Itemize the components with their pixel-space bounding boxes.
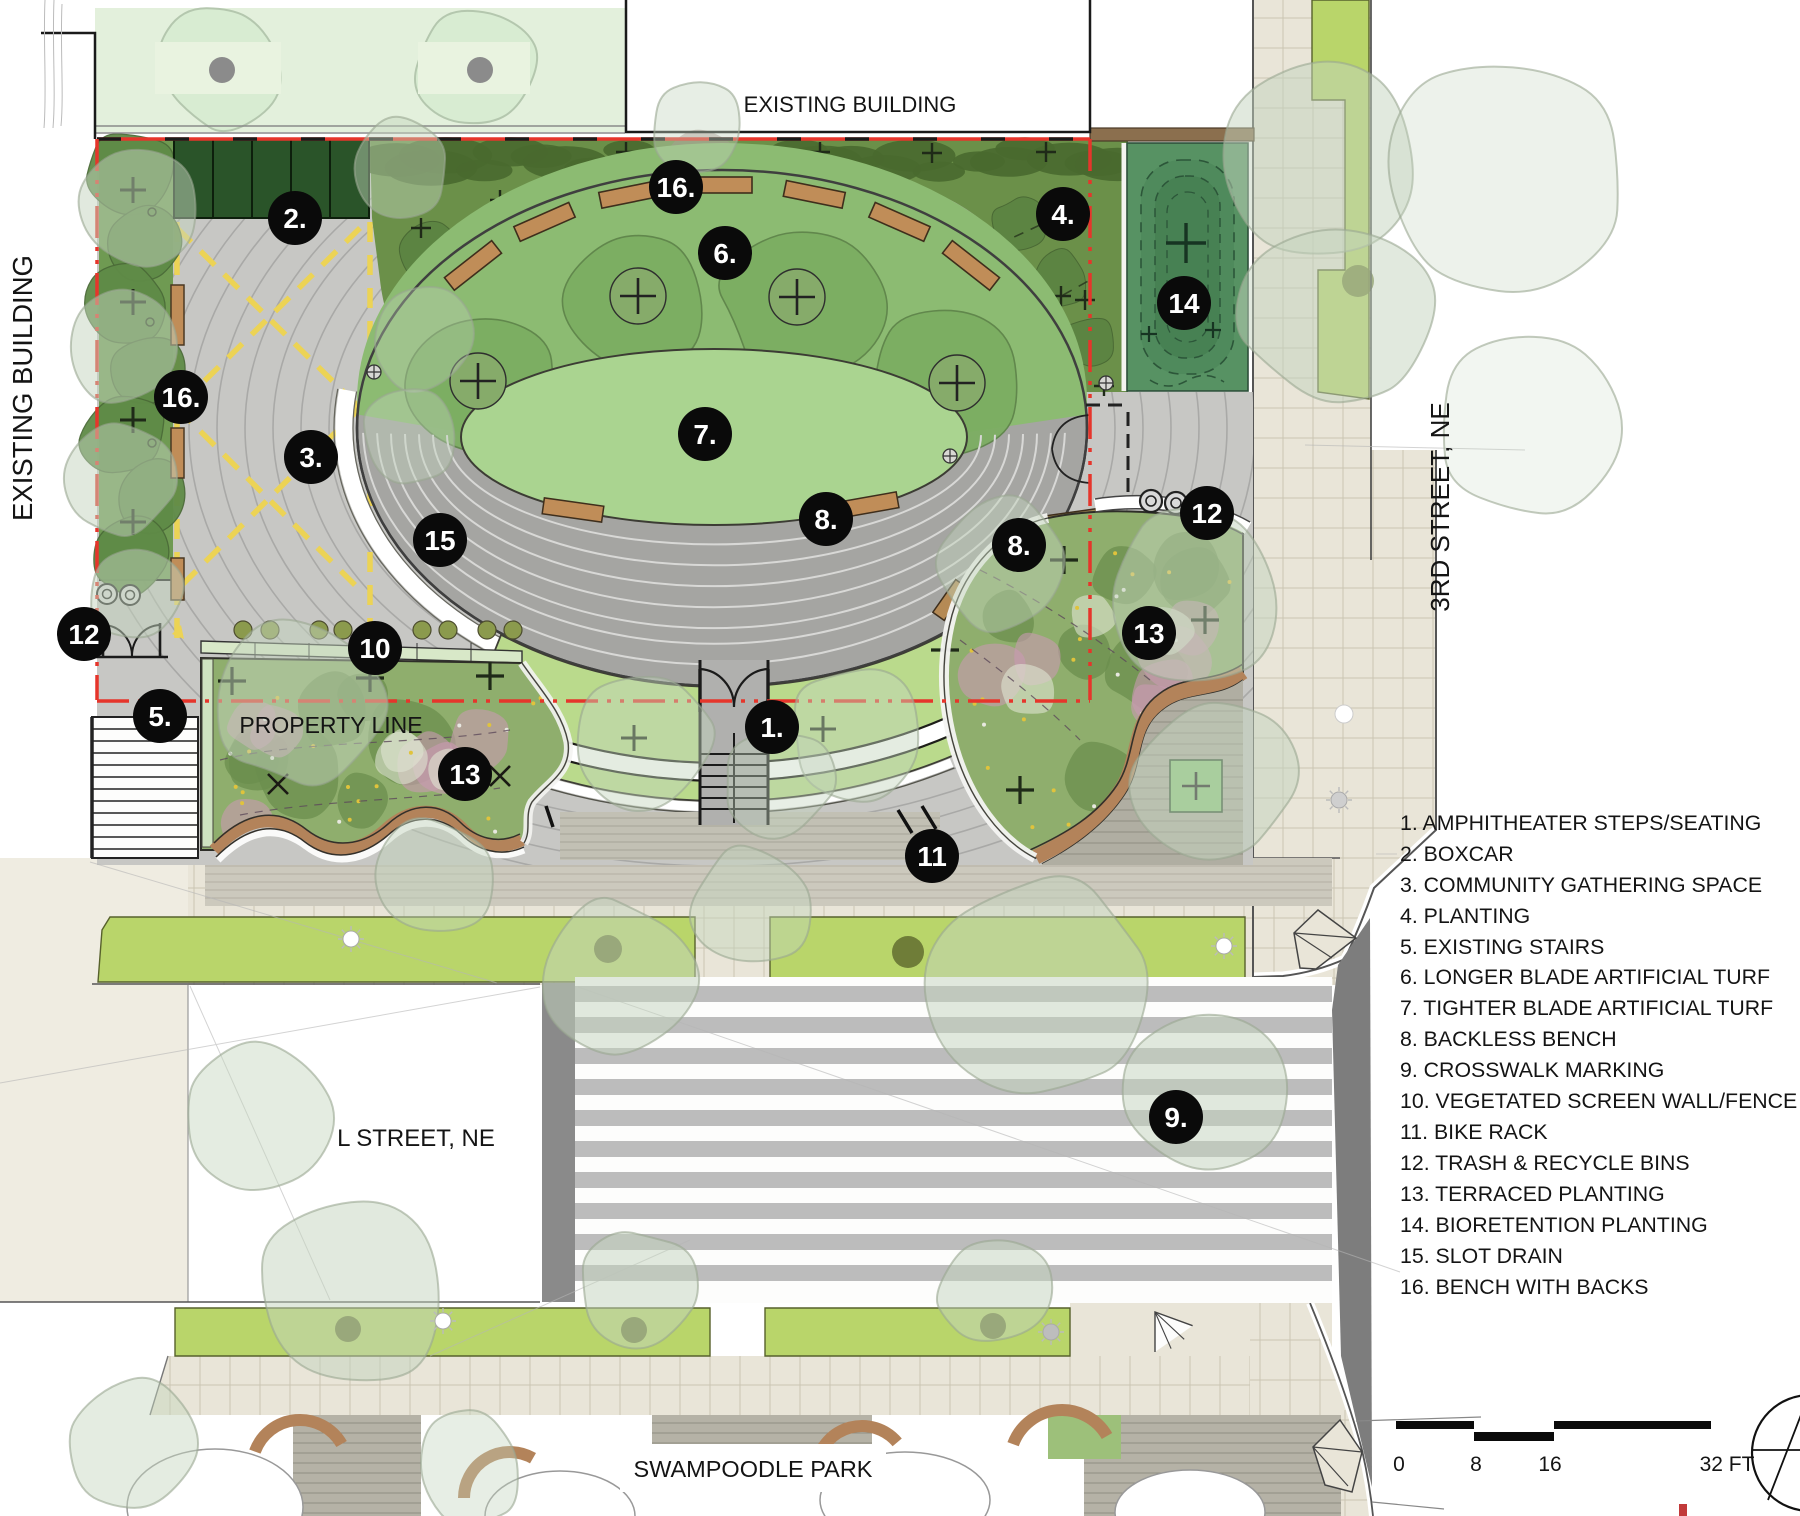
svg-text:10. VEGETATED SCREEN WALL/FENC: 10. VEGETATED SCREEN WALL/FENCE [1400,1089,1797,1113]
svg-text:14. BIORETENTION PLANTING: 14. BIORETENTION PLANTING [1400,1213,1708,1237]
svg-text:11: 11 [917,841,947,872]
svg-text:10: 10 [359,633,390,664]
svg-text:12: 12 [1191,498,1222,529]
svg-text:2.: 2. [283,203,306,234]
svg-text:9. CROSSWALK MARKING: 9. CROSSWALK MARKING [1400,1058,1664,1082]
svg-text:8.: 8. [814,504,837,535]
svg-text:3.: 3. [299,442,322,473]
svg-text:8.: 8. [1007,530,1030,561]
svg-text:16: 16 [1538,1453,1561,1476]
svg-text:11. BIKE RACK: 11. BIKE RACK [1400,1120,1548,1144]
svg-text:16.: 16. [657,172,696,203]
svg-text:0: 0 [1393,1453,1405,1476]
svg-text:12. TRASH & RECYCLE BINS: 12. TRASH & RECYCLE BINS [1400,1151,1690,1175]
svg-text:3RD STREET, NE: 3RD STREET, NE [1425,402,1455,612]
svg-text:L STREET, NE: L STREET, NE [337,1125,495,1152]
svg-text:7.: 7. [693,419,716,450]
svg-text:EXISTING BUILDING: EXISTING BUILDING [744,92,957,117]
svg-text:4. PLANTING: 4. PLANTING [1400,904,1530,928]
svg-text:14: 14 [1168,288,1200,319]
svg-text:SWAMPOODLE PARK: SWAMPOODLE PARK [634,1456,873,1482]
svg-text:13: 13 [1133,618,1164,649]
svg-text:9.: 9. [1164,1102,1187,1133]
svg-text:PROPERTY LINE: PROPERTY LINE [239,712,422,738]
svg-text:6. LONGER BLADE ARTIFICIAL TUR: 6. LONGER BLADE ARTIFICIAL TURF [1400,965,1770,989]
svg-text:5. EXISTING STAIRS: 5. EXISTING STAIRS [1400,935,1604,959]
svg-text:6.: 6. [713,238,736,269]
svg-text:1.: 1. [760,712,783,743]
svg-text:2. BOXCAR: 2. BOXCAR [1400,842,1514,866]
svg-text:4.: 4. [1051,199,1074,230]
svg-text:5.: 5. [148,701,171,732]
svg-text:15: 15 [424,525,455,556]
svg-text:7. TIGHTER BLADE ARTIFICIAL TU: 7. TIGHTER BLADE ARTIFICIAL TURF [1400,996,1773,1020]
svg-text:16. BENCH WITH BACKS: 16. BENCH WITH BACKS [1400,1275,1649,1299]
svg-text:13: 13 [449,759,480,790]
svg-text:3. COMMUNITY GATHERING SPACE: 3. COMMUNITY GATHERING SPACE [1400,873,1762,897]
svg-text:1. AMPHITHEATER STEPS/SEATING: 1. AMPHITHEATER STEPS/SEATING [1400,811,1761,835]
svg-text:13. TERRACED PLANTING: 13. TERRACED PLANTING [1400,1182,1665,1206]
svg-text:8: 8 [1470,1453,1482,1476]
svg-text:15. SLOT DRAIN: 15. SLOT DRAIN [1400,1244,1563,1268]
svg-text:EXISTING BUILDING: EXISTING BUILDING [7,255,38,521]
svg-text:12: 12 [68,619,99,650]
svg-text:16.: 16. [162,382,201,413]
svg-text:8. BACKLESS BENCH: 8. BACKLESS BENCH [1400,1027,1617,1051]
svg-text:32 FT: 32 FT [1700,1453,1755,1476]
